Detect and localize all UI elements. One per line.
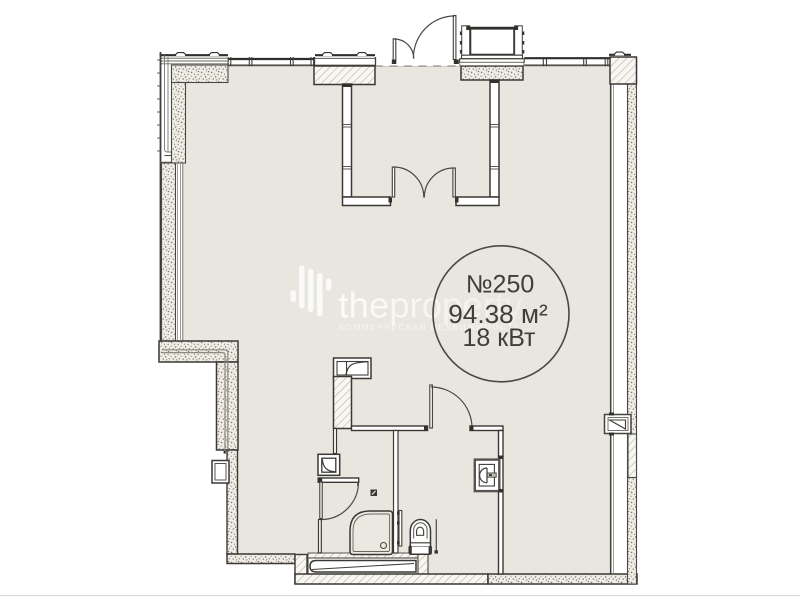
svg-text:18 кВт: 18 кВт [463,324,537,352]
svg-text:№250: №250 [466,271,535,299]
